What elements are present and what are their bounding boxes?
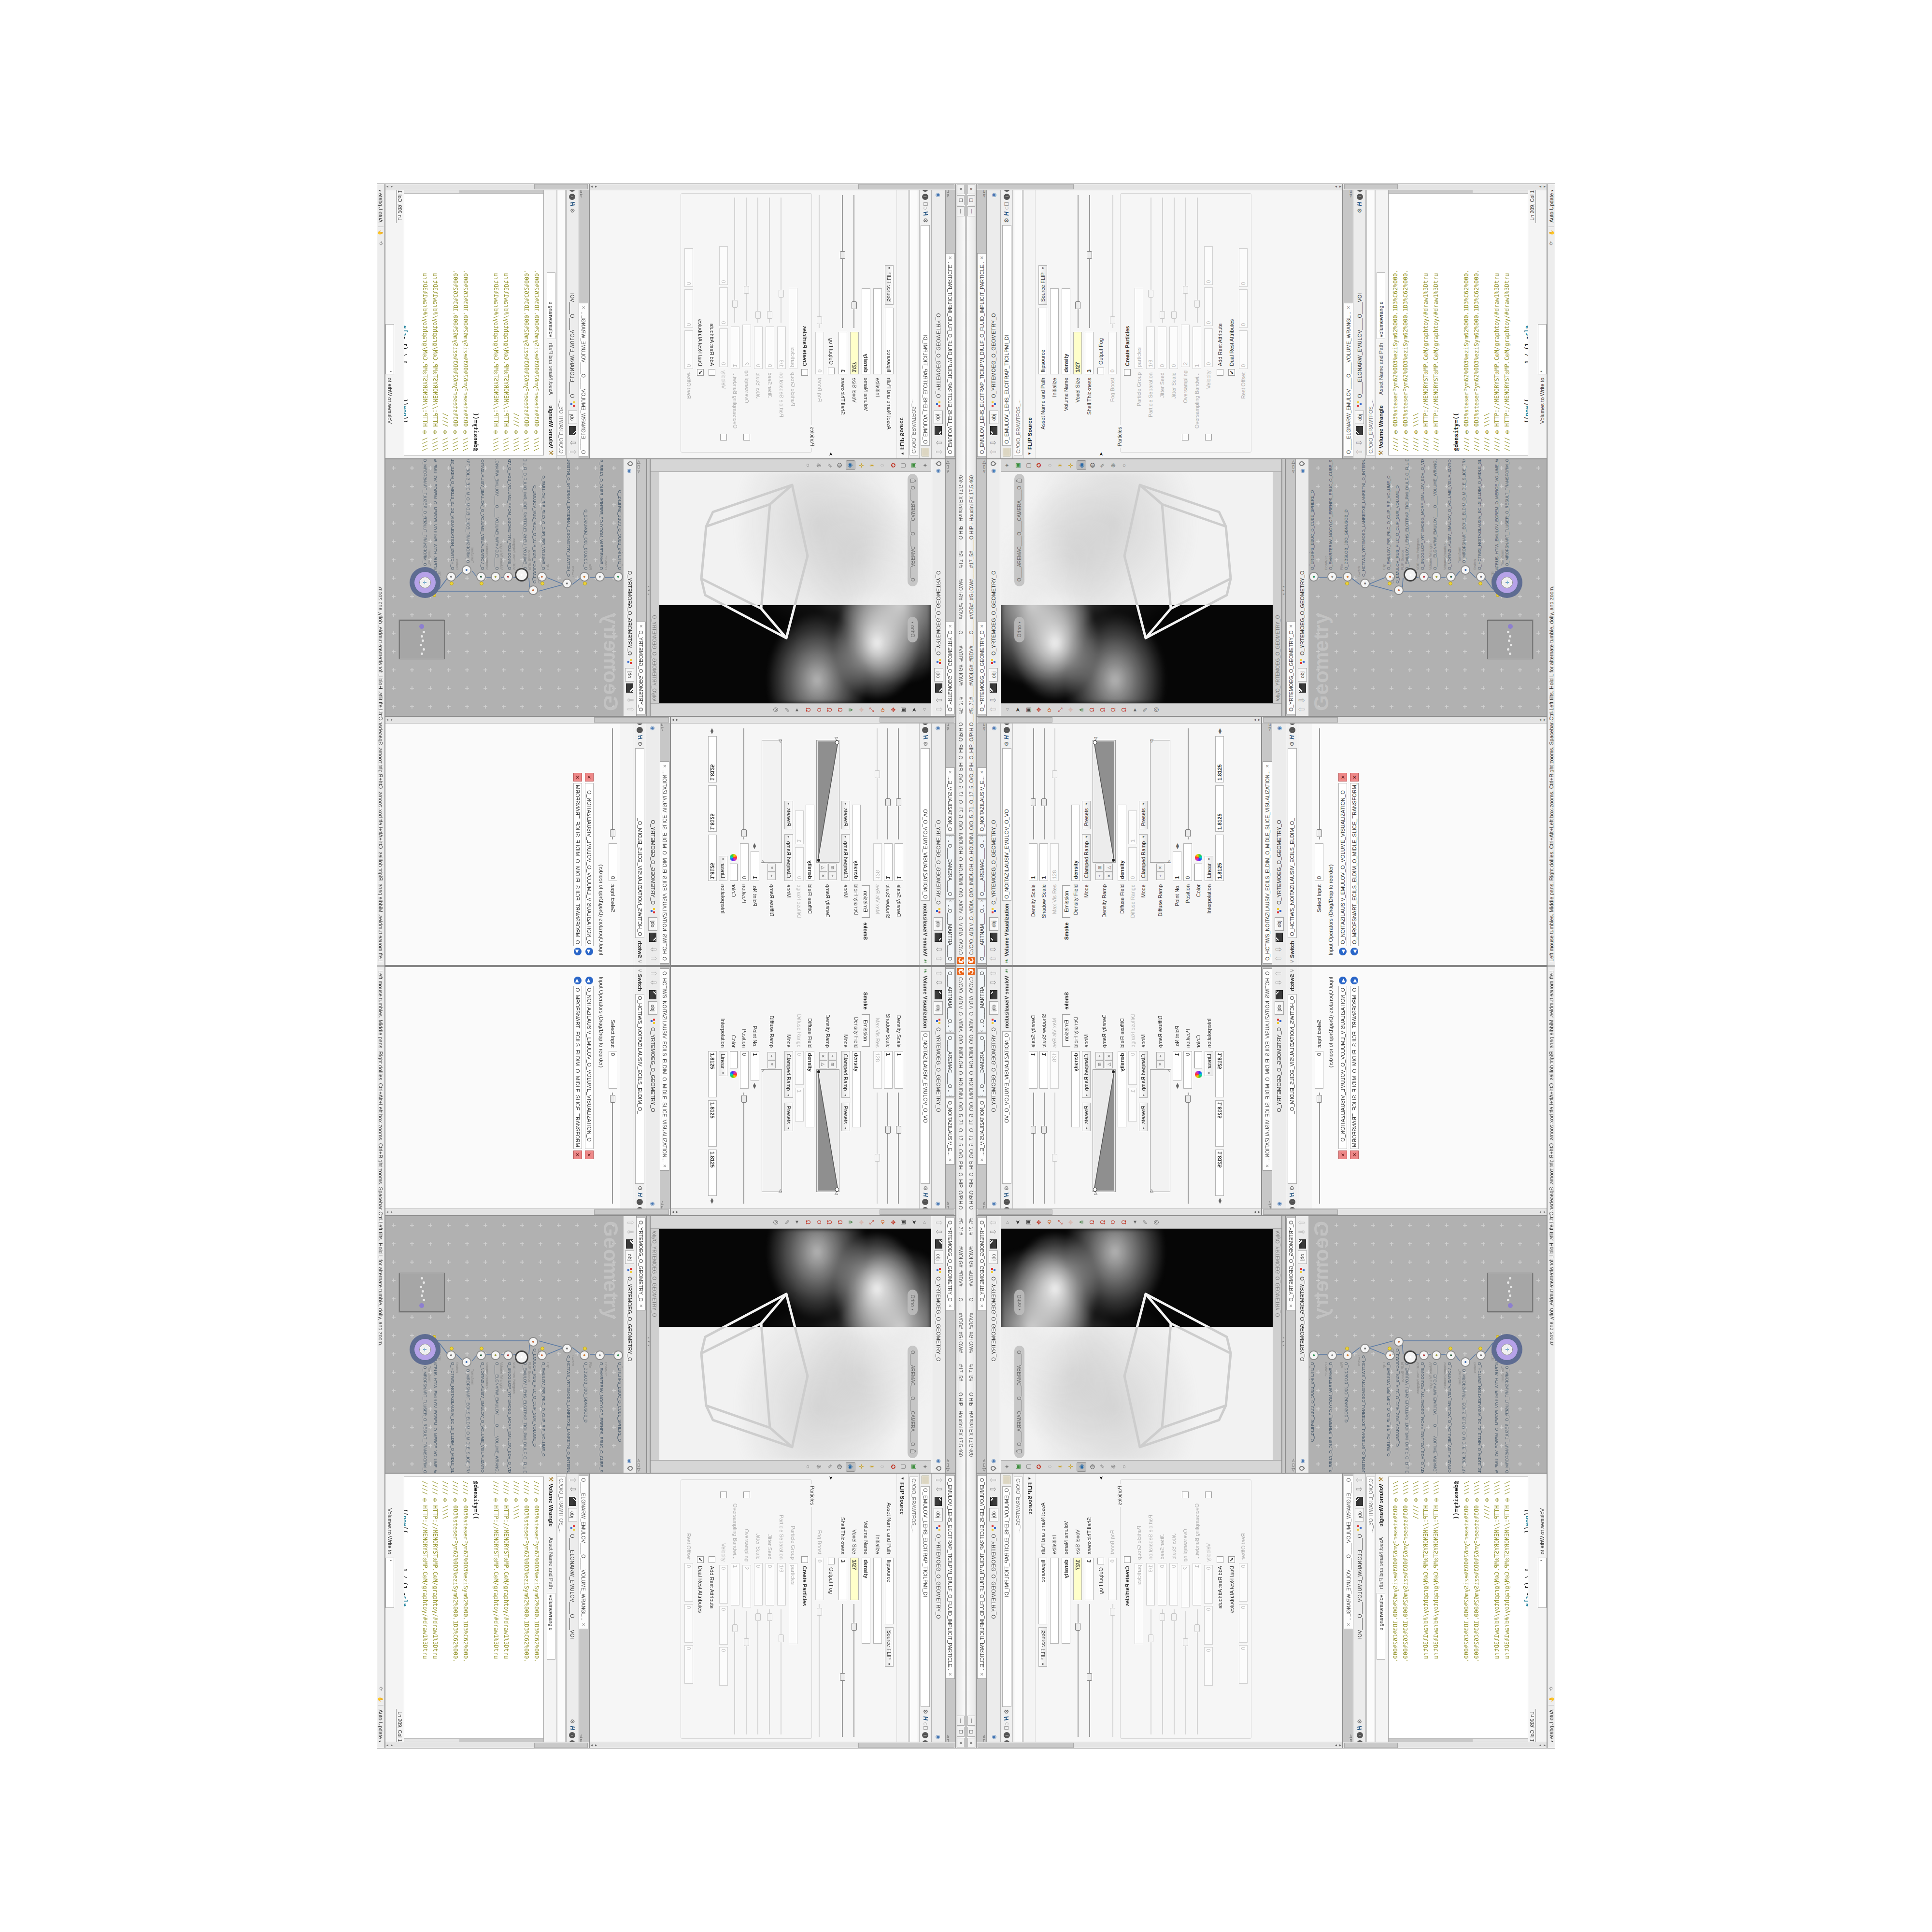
take-clapper-icon[interactable] (935, 683, 942, 693)
shell-thickness-field[interactable]: 3 (1085, 1558, 1094, 1600)
wrangle-asset-path-field[interactable]: C:/O/O_ERAWTFOS_... (1366, 186, 1375, 455)
reorder-arrow-icon[interactable]: ◀ (1350, 977, 1358, 984)
remove-icon[interactable]: ✕ (1350, 773, 1359, 781)
pane-splitter[interactable]: ▲ ▼ ▲ :::::: (647, 459, 650, 716)
output-fog-checkbox[interactable] (828, 368, 835, 374)
ramp-handle-icon[interactable]: ◁ (1093, 1192, 1098, 1195)
nav-up-icon[interactable]: ⇧ (1297, 705, 1307, 714)
oversampling-slider[interactable] (1182, 1611, 1189, 1734)
fog-boost-slider[interactable] (817, 1604, 823, 1737)
oversampling-checkbox[interactable] (743, 434, 750, 440)
close-tab-icon[interactable]: ✕ (662, 1164, 667, 1168)
tool-icon[interactable]: ⋔ (1077, 1218, 1086, 1227)
shadow-scale-field[interactable]: 1 (1039, 843, 1048, 881)
density-ramp[interactable]: ◁ (1093, 1069, 1116, 1192)
diffuse-range-max[interactable]: 1 (1128, 810, 1137, 844)
camera-pill[interactable]: O____AREMAC____O____CAMERA____O (908, 474, 918, 586)
tool-icon[interactable]: ✪ (888, 1462, 898, 1472)
position-slider[interactable] (741, 728, 748, 839)
nav-down-icon[interactable]: ⇩ (625, 696, 635, 705)
ramp-del-icon[interactable]: ✕ (1156, 1060, 1165, 1068)
node-volumevisualiza-[interactable]: ●VolumeVisualiza...O_NOITAZILAUSIV_EMULO… (476, 1350, 486, 1360)
help-h-icon[interactable]: H (1356, 1726, 1363, 1730)
velocity-checkbox[interactable] (1205, 434, 1212, 440)
take-clapper-icon[interactable] (935, 933, 942, 942)
ramp-handle-icon[interactable]: ◁ (834, 1192, 839, 1195)
particle-separation-slider[interactable] (779, 198, 785, 323)
tool-icon[interactable]: ⟳ (878, 1218, 887, 1227)
spinner-icon[interactable]: ◀▶ (710, 728, 715, 734)
tab-mantra[interactable]: O____ARTNAM____O...✕ (977, 968, 986, 1032)
volvis-scrollbar[interactable]: ▲▼ (671, 1208, 955, 1215)
ramp-handle-icon[interactable]: ◁ (778, 739, 783, 743)
input-operator-field[interactable]: O_MROFSNART_ECILS_ELDIM_O_MIDLE_SLICE_TR… (573, 783, 582, 946)
breadcrumb-path[interactable]: O_YRTEMOEG_O_GEOMETRY_O (627, 1277, 633, 1456)
node-result-transform[interactable]: ✛ Transform O_MROFSNART_TLUSER_O_RESULT_… (410, 1334, 440, 1365)
diffuse-presets-menu[interactable]: Presets (1139, 1103, 1148, 1131)
node-file[interactable]: ●FileO_DBSLOB_JBO_GBNUSOB_D (580, 572, 589, 582)
network-canvas[interactable]: Geometry ●an_CubeSphereO_EREHPS_EBUC_O_C… (1309, 1216, 1547, 1473)
tool-icon[interactable]: Ω (824, 1218, 834, 1227)
close-tab-icon[interactable]: ✕ (1346, 306, 1351, 310)
volume-name-field[interactable]: density (862, 288, 870, 374)
velocity-checkbox[interactable] (1205, 1492, 1212, 1498)
tool-icon[interactable]: Ω (1087, 705, 1097, 715)
link-target-icon[interactable]: ◉ (936, 193, 942, 198)
diffuse-mode-menu[interactable]: Clamped Ramp (1139, 1051, 1148, 1098)
spinner-icon[interactable]: ◀▶ (753, 1083, 757, 1089)
tool-icon[interactable]: Ω (835, 1218, 845, 1227)
tab-network[interactable]: O_YRTEMOEG_O_GEOMETRY_O✕ (637, 1218, 646, 1310)
help-h-icon[interactable]: H (1356, 202, 1363, 206)
point-no-field[interactable]: 1 (751, 1051, 759, 1081)
help-h-icon[interactable]: H (1003, 735, 1010, 739)
take-clapper-icon[interactable] (1276, 933, 1283, 942)
vec-y-field[interactable]: 1.8125 (708, 785, 717, 832)
diffuse-range-min[interactable]: 0 (795, 847, 804, 881)
close-tab-icon[interactable]: ✕ (581, 1623, 586, 1627)
max-vis-res-slider[interactable] (875, 1093, 881, 1204)
tool-icon[interactable]: Ω (1087, 1218, 1097, 1227)
link-target-icon[interactable]: ◉ (991, 1201, 997, 1206)
window-titlebar[interactable]: C:/O/O_AIDIV_O_VIDIA_O/O_INIDUOH_O_HOUDI… (966, 966, 976, 1748)
vex-editor[interactable]: //// ◎ 0D3%steserPym62%0D3%eziSym62%000.… (1388, 186, 1528, 455)
pane-controls[interactable]: ◅ ▭ ▷ (1291, 1458, 1295, 1473)
node-clip[interactable]: ●ClipO_EMULOV_RUS_PILC_O_CLIP_SUR_VOLUME… (1394, 585, 1404, 595)
diffuse-presets-menu[interactable]: Presets (784, 1103, 793, 1131)
help-h-icon[interactable]: H (922, 212, 929, 216)
node-switch[interactable]: ●SwitchO_HCTIWS_YRTEMOEG_LANRETXE_LANRET… (562, 579, 572, 588)
node-switch[interactable]: ●SwitchO_HCTIWS_YRTEMOEG_LANRETXE_LANRET… (1360, 1344, 1370, 1353)
collapse-triangle-icon[interactable]: ▼ (900, 452, 905, 455)
gear-icon[interactable]: ⚙ (1356, 1719, 1363, 1724)
voxel-size-slider[interactable] (1075, 195, 1081, 328)
rest-offset-y-field[interactable]: 0 (1239, 289, 1248, 328)
nav-up-icon[interactable]: ⇧ (934, 1476, 943, 1485)
nav-down-icon[interactable]: ⇩ (989, 1227, 998, 1236)
close-tab-icon[interactable]: ✕ (1289, 1304, 1293, 1308)
pin-icon[interactable] (627, 460, 634, 467)
jitter-scale-field[interactable]: 0 (1169, 1563, 1178, 1605)
breadcrumb-path[interactable]: O_YRTEMOEG_O_GEOMETRY_O (936, 1027, 941, 1199)
tool-icon[interactable]: ✪ (1034, 461, 1044, 470)
pane-splitter[interactable]: ▲ ▼ ▲ :::::: (1282, 1216, 1285, 1473)
select-input-slider[interactable] (1316, 728, 1322, 839)
diffuse-ramp[interactable]: ▷ ◁ (762, 740, 782, 863)
tab-network[interactable]: O_YRTEMOEG_O_GEOMETRY_O✕ (637, 622, 646, 714)
tab-volume-wrangle[interactable]: O____ELGNARW_EMULOV____O____VOLUME_WRANG… (1344, 1475, 1353, 1629)
breadcrumb-obj[interactable]: obj (934, 668, 943, 682)
tool-icon[interactable]: ✎ (824, 461, 834, 470)
pane-splitter[interactable]: ▲ ▼ ▲ :::::: (647, 1216, 650, 1473)
close-button[interactable]: ✕ (967, 1738, 975, 1748)
remove-icon[interactable]: ✕ (585, 1151, 594, 1159)
tool-icon[interactable]: ▣ (909, 1462, 919, 1472)
max-vis-res-slider[interactable] (1051, 1093, 1058, 1204)
breadcrumb-obj[interactable]: obj (934, 1508, 943, 1521)
volume-name-field[interactable]: density (1062, 288, 1070, 374)
volvis-name-field[interactable]: O_NOITAZILAUSIV_EMULOV_O_VO (921, 748, 930, 900)
nav-down-icon[interactable]: ⇩ (1274, 945, 1284, 954)
magnifier-icon[interactable]: ◌⃫ (1003, 202, 1010, 210)
jitter-seed-slider[interactable] (1159, 1609, 1165, 1734)
close-tab-icon[interactable]: ✕ (948, 770, 952, 774)
tab-camera[interactable]: O____AREMAC____O...✕ (946, 1033, 955, 1097)
switch-scrollbar[interactable]: ▲▼ (1262, 1208, 1547, 1215)
node-flag-icon[interactable] (480, 1347, 483, 1350)
asset-menu[interactable]: Source FLIP (885, 265, 894, 305)
tab-visualization[interactable]: O_NOITAZILAUSIV_E...✕ (946, 1098, 955, 1165)
maximize-button[interactable]: ❐ (967, 1727, 975, 1737)
help-h-icon[interactable]: H (637, 1193, 643, 1197)
oversampling-slider[interactable] (1182, 198, 1189, 321)
close-tab-icon[interactable]: ✕ (980, 835, 984, 837)
nav-up-icon[interactable]: ⇧ (934, 705, 944, 714)
switch-name-field[interactable]: O_HCTIWS_NOITAZILAUSIV_ECILS_ELDIM_O_ (636, 994, 645, 1184)
link-target-icon[interactable]: ◉ (627, 469, 633, 473)
window-titlebar[interactable]: C:/O/O_AIDIV_O_VIDIA_O/O_INIDUOH_O_HOUDI… (956, 184, 966, 966)
position-field[interactable]: 0 (740, 1051, 749, 1089)
link-target-icon[interactable]: ◉ (627, 1459, 633, 1463)
close-tab-icon[interactable]: ✕ (980, 256, 984, 260)
nav-down-icon[interactable]: ⇩ (625, 1227, 635, 1236)
help-h-icon[interactable]: H (922, 735, 929, 739)
info-icon[interactable]: i (569, 194, 575, 200)
gear-icon[interactable]: ⚙ (1003, 1186, 1010, 1191)
tab-network[interactable]: O_YRTEMOEG_O_GEOMETRY_O✕ (1286, 622, 1295, 714)
window-titlebar[interactable]: C:/O/O_AIDIV_O_VIDIA_O/O_INIDUOH_O_HOUDI… (956, 966, 966, 1748)
node-flip-source[interactable]: ●FLIP SourceO_EMULOV_LEHS_ELCITRAP_TICIL… (519, 1350, 528, 1360)
density-scale-field[interactable]: 1 (895, 1051, 903, 1089)
tab-switch[interactable]: O_HCTIWS_NOITAZILAUSIV_ECILS_ELDIM_O_MID… (660, 968, 669, 1171)
tool-icon[interactable]: ✎ (1140, 1218, 1150, 1227)
node-volume-wrangle[interactable]: ●Volume WrangleO____ELGNARW_EMULOV____O_… (491, 572, 500, 582)
tab-network[interactable]: O_YRTEMOEG_O_GEOMETRY_O✕ (1286, 1218, 1295, 1310)
diffuse-mode-menu[interactable]: Clamped Ramp (784, 834, 793, 881)
breadcrumb-path[interactable]: O_YRTEMOEG_O_GEOMETRY_O (991, 1534, 996, 1732)
vec-y-field[interactable]: 1.8125 (1215, 1100, 1224, 1147)
shadow-scale-slider[interactable] (1041, 1093, 1047, 1204)
breadcrumb-obj[interactable]: obj (934, 1001, 943, 1015)
breadcrumb-obj[interactable]: obj (989, 917, 998, 931)
create-particles-checkbox[interactable] (1124, 369, 1131, 376)
breadcrumb-obj[interactable]: obj (568, 1508, 577, 1521)
tool-icon[interactable]: ⤡ (1055, 1218, 1065, 1227)
tool-icon[interactable]: ◎ (771, 705, 781, 715)
link-target-icon[interactable]: ◉ (991, 1734, 997, 1739)
wrangle-name-field[interactable]: O____ELGNARW_EMULOV____O____VOl (570, 1534, 576, 1717)
tool-icon[interactable]: ✦ (1002, 1462, 1012, 1472)
close-button[interactable]: ✕ (957, 184, 965, 194)
density-presets-menu[interactable]: Presets (841, 1103, 850, 1131)
pin-icon[interactable] (936, 460, 942, 467)
flip-asset-path-field[interactable]: C:/O/O_ERAWTFOS_... (1014, 1477, 1023, 1746)
diffuse-field[interactable]: density (806, 1051, 814, 1127)
tool-icon[interactable]: ✦ (1002, 461, 1012, 470)
node-volumevisualiza-[interactable]: ●VolumeVisualiza...O_NOITAZILAUSIV_EMULO… (476, 572, 486, 582)
nav-up-icon[interactable]: ⇧ (934, 447, 943, 456)
reorder-arrow-icon[interactable]: ◀ (574, 977, 582, 984)
help-h-icon[interactable]: H (922, 1193, 929, 1197)
ramp-grid-icon[interactable]: ⊞ (828, 864, 837, 872)
ramp-add-icon[interactable]: ＋ (828, 872, 837, 880)
tool-icon[interactable]: ⟳ (1045, 705, 1054, 715)
asset-name-field[interactable]: flipsource (885, 1558, 894, 1624)
auto-update-dropdown[interactable]: Auto Update ▾ (1548, 1705, 1554, 1747)
diffuse-mode-menu[interactable]: Clamped Ramp (784, 1051, 793, 1098)
shell-thickness-slider[interactable] (1086, 1604, 1093, 1737)
velocity-checkbox[interactable] (720, 1492, 727, 1498)
wrangle-asset-path-field[interactable]: C:/O/O_ERAWTFOS_... (557, 1477, 566, 1746)
particle-separation-slider[interactable] (779, 1609, 785, 1734)
nav-up-icon[interactable]: ⇧ (625, 1218, 635, 1227)
minimize-button[interactable]: — (957, 1716, 965, 1726)
spinner-icon[interactable]: ◀▶ (1175, 843, 1179, 849)
refresh-icon[interactable]: ⟳ (1548, 1687, 1554, 1693)
density-ramp[interactable]: ◁ (1093, 740, 1116, 863)
node-flag-icon[interactable] (1478, 582, 1482, 585)
take-clapper-icon[interactable] (935, 1239, 942, 1249)
take-clapper-icon[interactable] (990, 1497, 997, 1506)
position-field[interactable]: 0 (1183, 1051, 1192, 1089)
tab-volume-wrangle[interactable]: O____ELGNARW_EMULOV____O____VOLUME_WRANG… (1344, 303, 1353, 457)
vec-y-field[interactable]: 1.8125 (708, 1100, 717, 1147)
take-clapper-icon[interactable] (569, 426, 576, 435)
nav-down-icon[interactable]: ⇩ (1274, 978, 1284, 987)
vec-z-field[interactable]: 1.8125 (1215, 736, 1224, 782)
breadcrumb-obj[interactable]: obj (934, 917, 943, 931)
node-flag-icon[interactable] (1345, 582, 1349, 585)
velocity-z-field[interactable]: 0 (1204, 1647, 1213, 1686)
nav-up-icon[interactable]: ⇧ (989, 1218, 998, 1227)
max-vis-res-field[interactable]: 128 (873, 1051, 882, 1089)
tool-icon[interactable]: ✎ (1098, 1462, 1108, 1472)
tool-icon[interactable]: Ω (803, 1218, 813, 1227)
jitter-seed-field[interactable]: 0 (1158, 1563, 1166, 1605)
tab-switch[interactable]: O_HCTIWS_NOITAZILAUSIV_ECILS_ELDIM_O_MID… (1263, 761, 1272, 964)
tool-icon[interactable]: ✥ (1066, 705, 1076, 715)
nav-up-icon[interactable]: ⇧ (934, 954, 943, 963)
vec-z-field[interactable]: 1.8125 (708, 736, 717, 782)
breadcrumb-obj[interactable]: obj (989, 1001, 998, 1015)
nav-down-icon[interactable]: ⇩ (1355, 1485, 1364, 1494)
tool-icon[interactable]: ✛ (1066, 461, 1076, 470)
vec-x-field[interactable]: 1.8125 (708, 835, 717, 881)
interpolation-menu[interactable]: Linear (1205, 856, 1213, 881)
take-clapper-icon[interactable] (990, 426, 997, 435)
oversampling-bw-slider[interactable] (732, 198, 739, 323)
gear-icon[interactable]: ⚙ (1356, 208, 1363, 213)
close-tab-icon[interactable]: ✕ (662, 764, 667, 768)
volvis-name-field[interactable]: O_NOITAZILAUSIV_EMULOV_O_VO (1002, 748, 1011, 900)
node-polywire[interactable]: ●PolyWireO_EMARFERIW_NOGYLOP_EREHPS_EBUC… (595, 572, 605, 582)
vec-x-field[interactable]: 1.8125 (708, 1051, 717, 1097)
initialize-field[interactable] (1050, 288, 1059, 374)
info-icon[interactable]: i (1004, 194, 1010, 200)
close-tab-icon[interactable]: ✕ (980, 1030, 984, 1032)
switch-name-field[interactable]: O_HCTIWS_NOITAZILAUSIV_ECILS_ELDIM_O_ (636, 748, 645, 938)
tool-icon[interactable]: ✎ (1140, 705, 1150, 715)
switch-scrollbar[interactable]: ▲▼ (385, 1208, 670, 1215)
spinner-icon[interactable]: ◀▶ (1218, 1198, 1222, 1204)
close-tab-icon[interactable]: ✕ (980, 1095, 984, 1097)
link-target-icon[interactable]: ◉ (1276, 726, 1282, 731)
position-slider[interactable] (1185, 728, 1191, 839)
shadow-scale-field[interactable]: 1 (884, 1051, 893, 1089)
diffuse-range-min[interactable]: 0 (1128, 847, 1137, 881)
breadcrumb-path[interactable]: O_YRTEMOEG_O_GEOMETRY_O (991, 200, 996, 398)
flip-asset-path-field[interactable]: C:/O/O_ERAWTFOS_... (1014, 186, 1023, 455)
tab-camera[interactable]: O____AREMAC____O...✕ (977, 835, 986, 899)
pane-controls[interactable]: ◅ ▭ ▷ (981, 1458, 986, 1473)
pin-icon[interactable] (1298, 1465, 1305, 1472)
tab-emission[interactable]: Emission (862, 885, 870, 918)
take-clapper-icon[interactable] (1299, 1239, 1306, 1249)
info-icon[interactable]: i (637, 727, 643, 733)
nav-down-icon[interactable]: ⇩ (568, 1485, 578, 1494)
remove-icon[interactable]: ✕ (1338, 773, 1347, 781)
input-operator-field[interactable]: O_NOITAZILAUSIV_EMULOV_O_VOLUME_VISUALIZ… (585, 986, 594, 1149)
help-h-icon[interactable]: H (922, 1716, 929, 1720)
ramp-handle-icon[interactable]: ▷ (761, 860, 766, 863)
tool-icon[interactable]: ◃ (1002, 705, 1012, 715)
asset-menu[interactable]: Source FLIP (1038, 265, 1047, 305)
shadow-scale-slider[interactable] (885, 728, 892, 839)
shadow-scale-slider[interactable] (885, 1093, 892, 1204)
breadcrumb-obj[interactable]: obj (625, 668, 635, 682)
oversampling-bw-slider[interactable] (1194, 1609, 1200, 1734)
take-clapper-icon[interactable] (935, 426, 942, 435)
ramp-del-icon[interactable]: ✕ (768, 864, 776, 872)
shadow-scale-field[interactable]: 1 (884, 843, 893, 881)
oversampling-bw-field[interactable]: 1 (731, 1563, 739, 1605)
hand-icon[interactable]: ✋ (1548, 229, 1554, 236)
breadcrumb-path[interactable]: O_YRTEMOEG_O_GEOMETRY_O (991, 1277, 996, 1456)
ramp-handle-icon[interactable]: ◁ (778, 1189, 783, 1193)
velocity-y-field[interactable]: 0 (1204, 1606, 1213, 1645)
tool-icon[interactable]: ▣ (1023, 1218, 1033, 1227)
link-target-icon[interactable]: ◉ (936, 1459, 942, 1463)
breadcrumb-obj[interactable]: obj (1275, 1001, 1284, 1015)
tool-icon[interactable]: ⟳ (878, 705, 887, 715)
tool-icon[interactable]: ◎ (1151, 1218, 1161, 1227)
input-operator-field[interactable]: O_MROFSNART_ECILS_ELDIM_O_MIDLE_SLICE_TR… (1350, 783, 1359, 946)
info-icon[interactable]: i (922, 727, 928, 733)
node-flag-icon[interactable] (583, 582, 587, 585)
diffuse-presets-menu[interactable]: Presets (1139, 801, 1148, 829)
pane-splitter[interactable]: ▲ ▼ ▲ :::::: (1282, 459, 1285, 716)
take-clapper-icon[interactable] (569, 1497, 576, 1506)
tool-icon[interactable]: Ω (1108, 705, 1118, 715)
node-volume-wrangle[interactable]: ●Volume WrangleO____ELGNARW_EMULOV____O_… (491, 1350, 500, 1360)
nav-up-icon[interactable]: ⇧ (989, 447, 998, 456)
ramp-handle-icon[interactable]: ◁ (1093, 737, 1098, 740)
tab-scene-view[interactable]: O_YRTEMOEG_O_GEOMETRY_O✕ (946, 622, 955, 714)
flip-name-field[interactable]: O_EMULOV_LEHS_ELCITRAP_TICILPMI_DI (921, 225, 930, 446)
volumes-field[interactable]: * (1538, 1558, 1547, 1608)
asset-name-field[interactable]: flipsource (1038, 1558, 1047, 1624)
close-button[interactable]: ✕ (967, 184, 975, 194)
close-tab-icon[interactable]: ✕ (948, 625, 952, 628)
shell-thickness-field[interactable]: 3 (838, 332, 847, 374)
particle-separation-field[interactable]: 1/9 (777, 1563, 786, 1605)
node-flag-icon[interactable] (450, 1347, 454, 1350)
refresh-icon[interactable]: ⟳ (378, 1687, 384, 1693)
tool-icon[interactable]: ⋔ (846, 1218, 855, 1227)
flip-asset-path-field[interactable]: C:/O/O_ERAWTFOS_... (909, 1477, 918, 1746)
create-particles-checkbox[interactable] (1124, 1556, 1131, 1563)
tool-icon[interactable]: ◌ (878, 1462, 887, 1472)
info-icon[interactable]: i (1357, 194, 1363, 200)
nav-down-icon[interactable]: ⇩ (1355, 438, 1364, 447)
take-clapper-icon[interactable] (990, 990, 997, 999)
nav-up-icon[interactable]: ⇧ (1274, 954, 1284, 963)
vec-y-field[interactable]: 1.8125 (1215, 785, 1224, 832)
position-field[interactable]: 0 (1183, 843, 1192, 881)
node-polywire[interactable]: ●PolyWireO_EMARFERIW_NOGYLOP_EREHPS_EBUC… (1327, 1350, 1337, 1360)
network-canvas[interactable]: Geometry ●an_CubeSphereO_EREHPS_EBUC_O_C… (1309, 459, 1547, 716)
diffuse-range-max[interactable]: 1 (1128, 1088, 1137, 1122)
collapse-triangle-icon[interactable]: ▼ (1027, 452, 1032, 455)
tool-icon[interactable]: ▣ (899, 1218, 909, 1227)
tab-flip-source[interactable]: O_EMULOV_LEHS_ELCITRAP_TICILPMI_DIULF_O_… (977, 253, 986, 457)
node-volumevisualiza-[interactable]: ●VolumeVisualiza...O_NOITAZILAUSIV_EMULO… (1446, 1350, 1456, 1360)
tool-icon[interactable]: ✎ (824, 1462, 834, 1472)
fog-boost-slider[interactable] (1109, 195, 1116, 328)
node-switch[interactable]: ●SwitchO_HCTIWS_NOITAZILAUSIV_ECILS_ELDI… (1476, 1350, 1486, 1360)
create-particles-checkbox[interactable] (801, 1556, 808, 1563)
breadcrumb-path[interactable]: O_YRTEMOEG_O_GEOMETRY_O (991, 1027, 996, 1199)
density-ramp[interactable]: ◁ (816, 740, 839, 863)
oversampling-bw-field[interactable]: 1 (1193, 327, 1201, 369)
diffuse-range-max[interactable]: 1 (795, 810, 804, 844)
density-field[interactable]: density (1071, 805, 1080, 881)
node-switch[interactable]: ●SwitchO_HCTIWS_NOITAZILAUSIV_ECILS_ELDI… (1476, 572, 1486, 582)
tool-icon[interactable]: ✪ (888, 461, 898, 470)
tool-icon[interactable]: ⋔ (846, 705, 855, 715)
collapse-triangle-icon[interactable]: ▼ (1027, 1477, 1032, 1480)
take-clapper-icon[interactable] (626, 1239, 634, 1249)
breadcrumb-obj[interactable]: obj (1298, 668, 1307, 682)
nav-down-icon[interactable]: ⇩ (934, 696, 944, 705)
gear-icon[interactable]: ⚙ (922, 218, 929, 223)
tool-icon[interactable]: ☀ (1055, 1462, 1065, 1472)
ramp-del-icon[interactable]: ✕ (768, 1060, 776, 1068)
jitter-seed-field[interactable]: 0 (766, 327, 774, 369)
tool-icon[interactable]: ▣ (899, 705, 909, 715)
output-fog-checkbox[interactable] (1097, 1558, 1104, 1564)
gear-icon[interactable]: ⚙ (637, 741, 643, 747)
